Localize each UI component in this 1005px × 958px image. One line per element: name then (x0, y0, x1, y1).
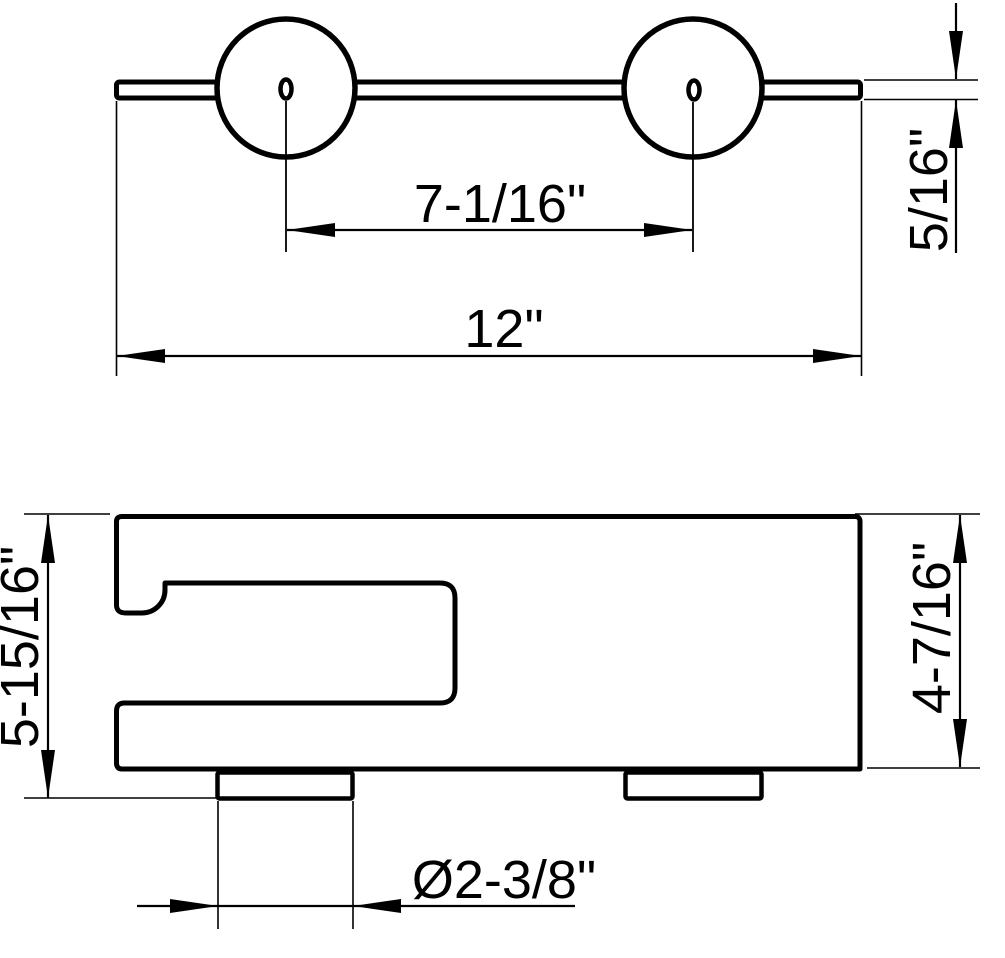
overall-width-label: 12" (464, 299, 543, 359)
arrow-right-icon (170, 899, 218, 913)
dimension-post-diameter: Ø2-3/8" (137, 801, 596, 929)
front-view: 5-15/16" 4-7/16" Ø2-3/8" (0, 514, 980, 929)
dimension-hole-spacing: 7-1/16" (287, 174, 692, 237)
arrow-left-icon (353, 899, 401, 913)
hole-spacing-label: 7-1/16" (414, 174, 586, 234)
dimension-body-height: 4-7/16" (855, 514, 980, 768)
arrow-left-icon (117, 349, 165, 363)
bracket-profile-outline (117, 517, 861, 770)
dimension-bar-thickness: 5/16" (864, 3, 978, 253)
arrow-right-icon (813, 349, 861, 363)
overall-height-label: 5-15/16" (0, 546, 50, 748)
arrow-down-icon (949, 31, 963, 79)
right-center-hole (689, 81, 700, 100)
drawing-canvas: 7-1/16" 12" 5/16" (0, 0, 1005, 958)
post-diameter-label: Ø2-3/8" (412, 850, 596, 910)
bar-thickness-label: 5/16" (899, 128, 959, 252)
dimension-overall-width: 12" (117, 101, 862, 376)
arrow-left-icon (287, 223, 335, 237)
left-center-hole (281, 80, 292, 99)
arrow-down-icon (41, 750, 55, 798)
top-view: 7-1/16" 12" 5/16" (117, 3, 979, 376)
arrow-right-icon (644, 223, 692, 237)
right-post-foot (626, 773, 762, 799)
arrow-down-icon (953, 719, 967, 767)
left-post-foot (218, 773, 353, 799)
technical-drawing: 7-1/16" 12" 5/16" (0, 0, 1005, 958)
body-height-label: 4-7/16" (902, 542, 962, 714)
